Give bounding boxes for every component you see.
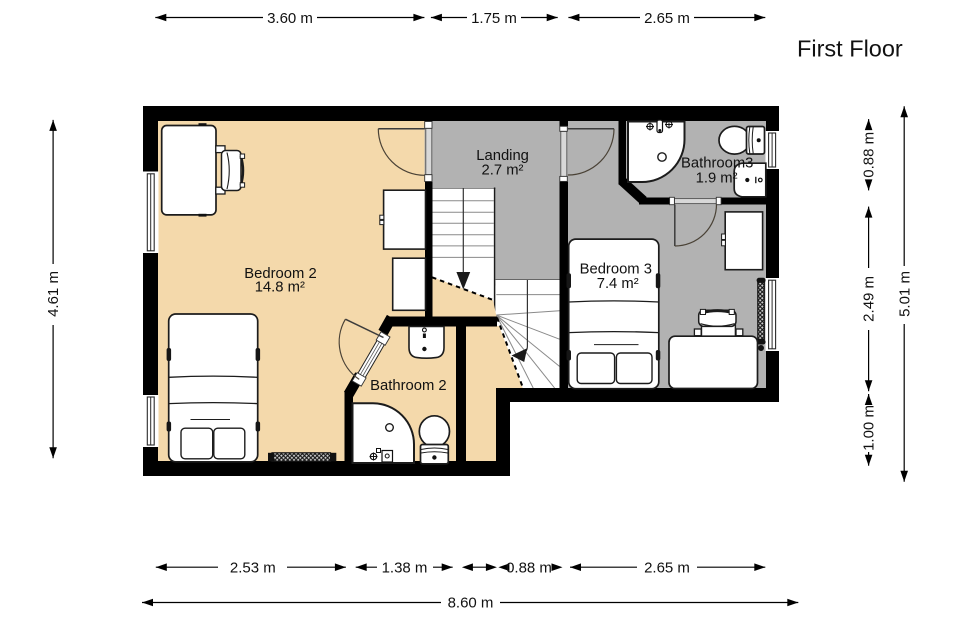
svg-text:2.65 m: 2.65 m bbox=[644, 559, 690, 576]
svg-text:7.4 m²: 7.4 m² bbox=[597, 276, 639, 292]
svg-text:Bathroom 2: Bathroom 2 bbox=[370, 378, 447, 394]
svg-text:First Floor: First Floor bbox=[797, 36, 903, 62]
svg-text:5.01 m: 5.01 m bbox=[896, 271, 913, 317]
svg-text:1.38 m: 1.38 m bbox=[382, 559, 428, 576]
svg-text:2.7 m²: 2.7 m² bbox=[482, 162, 524, 178]
svg-text:2.49 m: 2.49 m bbox=[861, 276, 878, 322]
svg-text:8.60 m: 8.60 m bbox=[448, 595, 494, 612]
svg-text:1.9 m²: 1.9 m² bbox=[696, 170, 738, 186]
svg-text:14.8 m²: 14.8 m² bbox=[255, 279, 305, 295]
svg-text:Bedroom 3: Bedroom 3 bbox=[580, 261, 652, 277]
svg-text:2.65 m: 2.65 m bbox=[644, 10, 690, 27]
svg-text:0.88 m: 0.88 m bbox=[861, 132, 878, 178]
svg-text:1.00 m: 1.00 m bbox=[861, 405, 878, 451]
svg-text:3.60 m: 3.60 m bbox=[267, 10, 313, 27]
svg-text:0.88 m: 0.88 m bbox=[506, 559, 552, 576]
svg-text:2.53 m: 2.53 m bbox=[230, 559, 276, 576]
svg-text:4.61 m: 4.61 m bbox=[45, 271, 62, 317]
svg-text:1.75 m: 1.75 m bbox=[471, 10, 517, 27]
svg-text:Bathroom3: Bathroom3 bbox=[681, 156, 753, 172]
